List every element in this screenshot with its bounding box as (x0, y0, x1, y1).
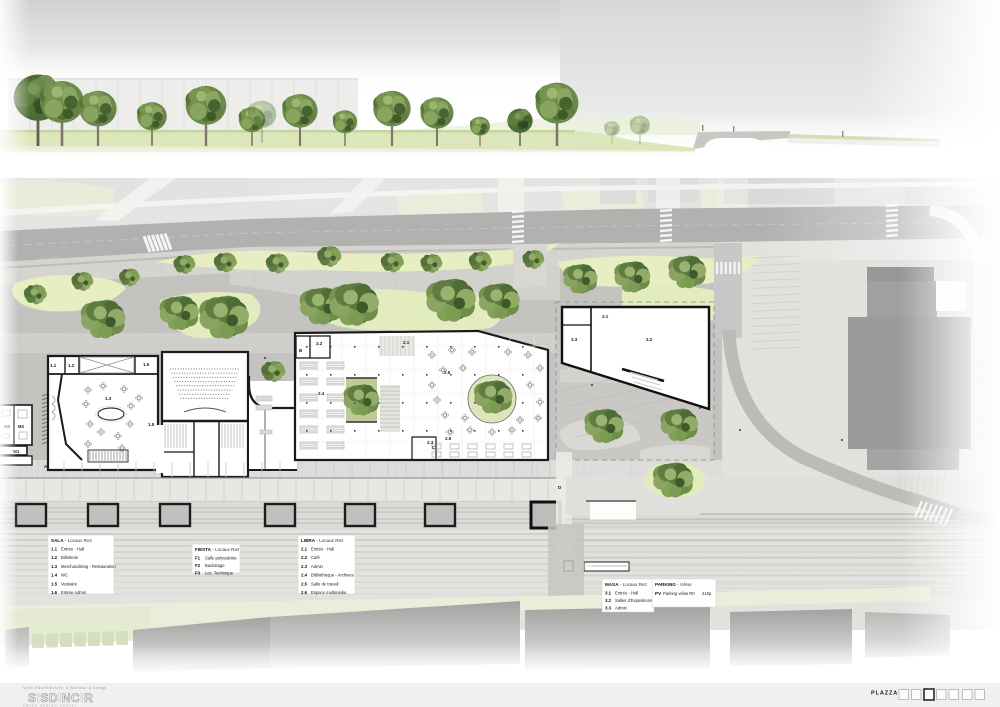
svg-text:suite d'architecture, d'intéri: suite d'architecture, d'intérieur & desi… (23, 686, 107, 690)
svg-text:1.6: 1.6 (51, 590, 58, 595)
svg-text:2.6: 2.6 (301, 590, 308, 595)
svg-text:Vestiaire: Vestiaire (61, 581, 78, 586)
svg-text:2.1: 2.1 (403, 340, 410, 345)
svg-text:3.1: 3.1 (605, 591, 612, 596)
svg-text:PV: PV (655, 591, 662, 596)
svg-text:1.3: 1.3 (105, 396, 112, 401)
svg-text:FIESTA - Locaux Rez: FIESTA - Locaux Rez (195, 547, 240, 552)
svg-text:F3: F3 (195, 570, 201, 575)
svg-text:2.5: 2.5 (444, 370, 451, 375)
svg-text:1.1: 1.1 (51, 547, 58, 552)
svg-text:Loc. Technique: Loc. Technique (205, 570, 234, 575)
svg-text:3.2: 3.2 (605, 598, 612, 603)
svg-text:3.3: 3.3 (571, 337, 578, 342)
svg-text:2.2: 2.2 (316, 341, 323, 346)
svg-text:1.2: 1.2 (51, 555, 58, 560)
svg-text:Admin: Admin (311, 564, 324, 569)
svg-text:3.2: 3.2 (646, 337, 653, 342)
svg-text:PLAZZA: PLAZZA (871, 691, 898, 697)
svg-text:1.5: 1.5 (51, 581, 58, 586)
svg-text:Billetterie: Billetterie (61, 555, 79, 560)
svg-text:F2: F2 (195, 563, 201, 568)
svg-text:Salles d'Expositions: Salles d'Expositions (615, 598, 652, 603)
svg-text:Entrée Admin: Entrée Admin (61, 590, 87, 595)
svg-text:MASA - Locaux Rez: MASA - Locaux Rez (605, 582, 648, 587)
svg-text:1.1: 1.1 (50, 363, 57, 368)
svg-text:WC: WC (61, 573, 68, 578)
svg-text:Backstage: Backstage (205, 563, 225, 568)
svg-text:2.6: 2.6 (445, 436, 452, 441)
svg-text:Salle polyvalente: Salle polyvalente (205, 556, 237, 561)
svg-text:1.4: 1.4 (51, 573, 58, 578)
svg-text:1.2: 1.2 (68, 363, 75, 368)
svg-text:swiss design center: swiss design center (23, 704, 77, 707)
svg-text:210p: 210p (702, 591, 712, 596)
svg-text:M3: M3 (18, 424, 24, 429)
svg-text:1.6: 1.6 (143, 362, 150, 367)
svg-text:1.3: 1.3 (51, 564, 58, 569)
svg-text:LIBRA - Locaux Rez: LIBRA - Locaux Rez (301, 538, 344, 543)
svg-text:Entrée - Hall: Entrée - Hall (311, 547, 334, 552)
svg-text:2.4: 2.4 (301, 573, 308, 578)
svg-text:Espace multimédia: Espace multimédia (311, 590, 347, 595)
svg-text:Admin: Admin (615, 606, 628, 611)
svg-text:Entrée - Hall: Entrée - Hall (615, 591, 638, 596)
svg-text:3.3: 3.3 (605, 606, 612, 611)
svg-text:PARKING - Vélos: PARKING - Vélos (655, 582, 692, 587)
svg-text:2.5: 2.5 (301, 581, 308, 586)
svg-text:2.4: 2.4 (318, 391, 325, 396)
svg-text:2.3: 2.3 (301, 564, 308, 569)
svg-text:2.1: 2.1 (301, 547, 308, 552)
svg-text:Entrée - Hall: Entrée - Hall (61, 547, 84, 552)
svg-text:F1: F1 (195, 556, 201, 561)
svg-text:1.5: 1.5 (148, 422, 155, 427)
svg-text:Parking vélos R0: Parking vélos R0 (663, 591, 695, 596)
svg-text:Bibliothèque - Archives: Bibliothèque - Archives (311, 573, 354, 578)
svg-text:2.2: 2.2 (301, 555, 308, 560)
svg-text:Café: Café (311, 555, 321, 560)
svg-text:Salle de travail: Salle de travail (311, 581, 339, 586)
svg-text:Merchandising - Restauration: Merchandising - Restauration (61, 564, 116, 569)
svg-text:3.1: 3.1 (602, 314, 609, 319)
svg-text:SALA - Locaux Rez: SALA - Locaux Rez (51, 538, 93, 543)
